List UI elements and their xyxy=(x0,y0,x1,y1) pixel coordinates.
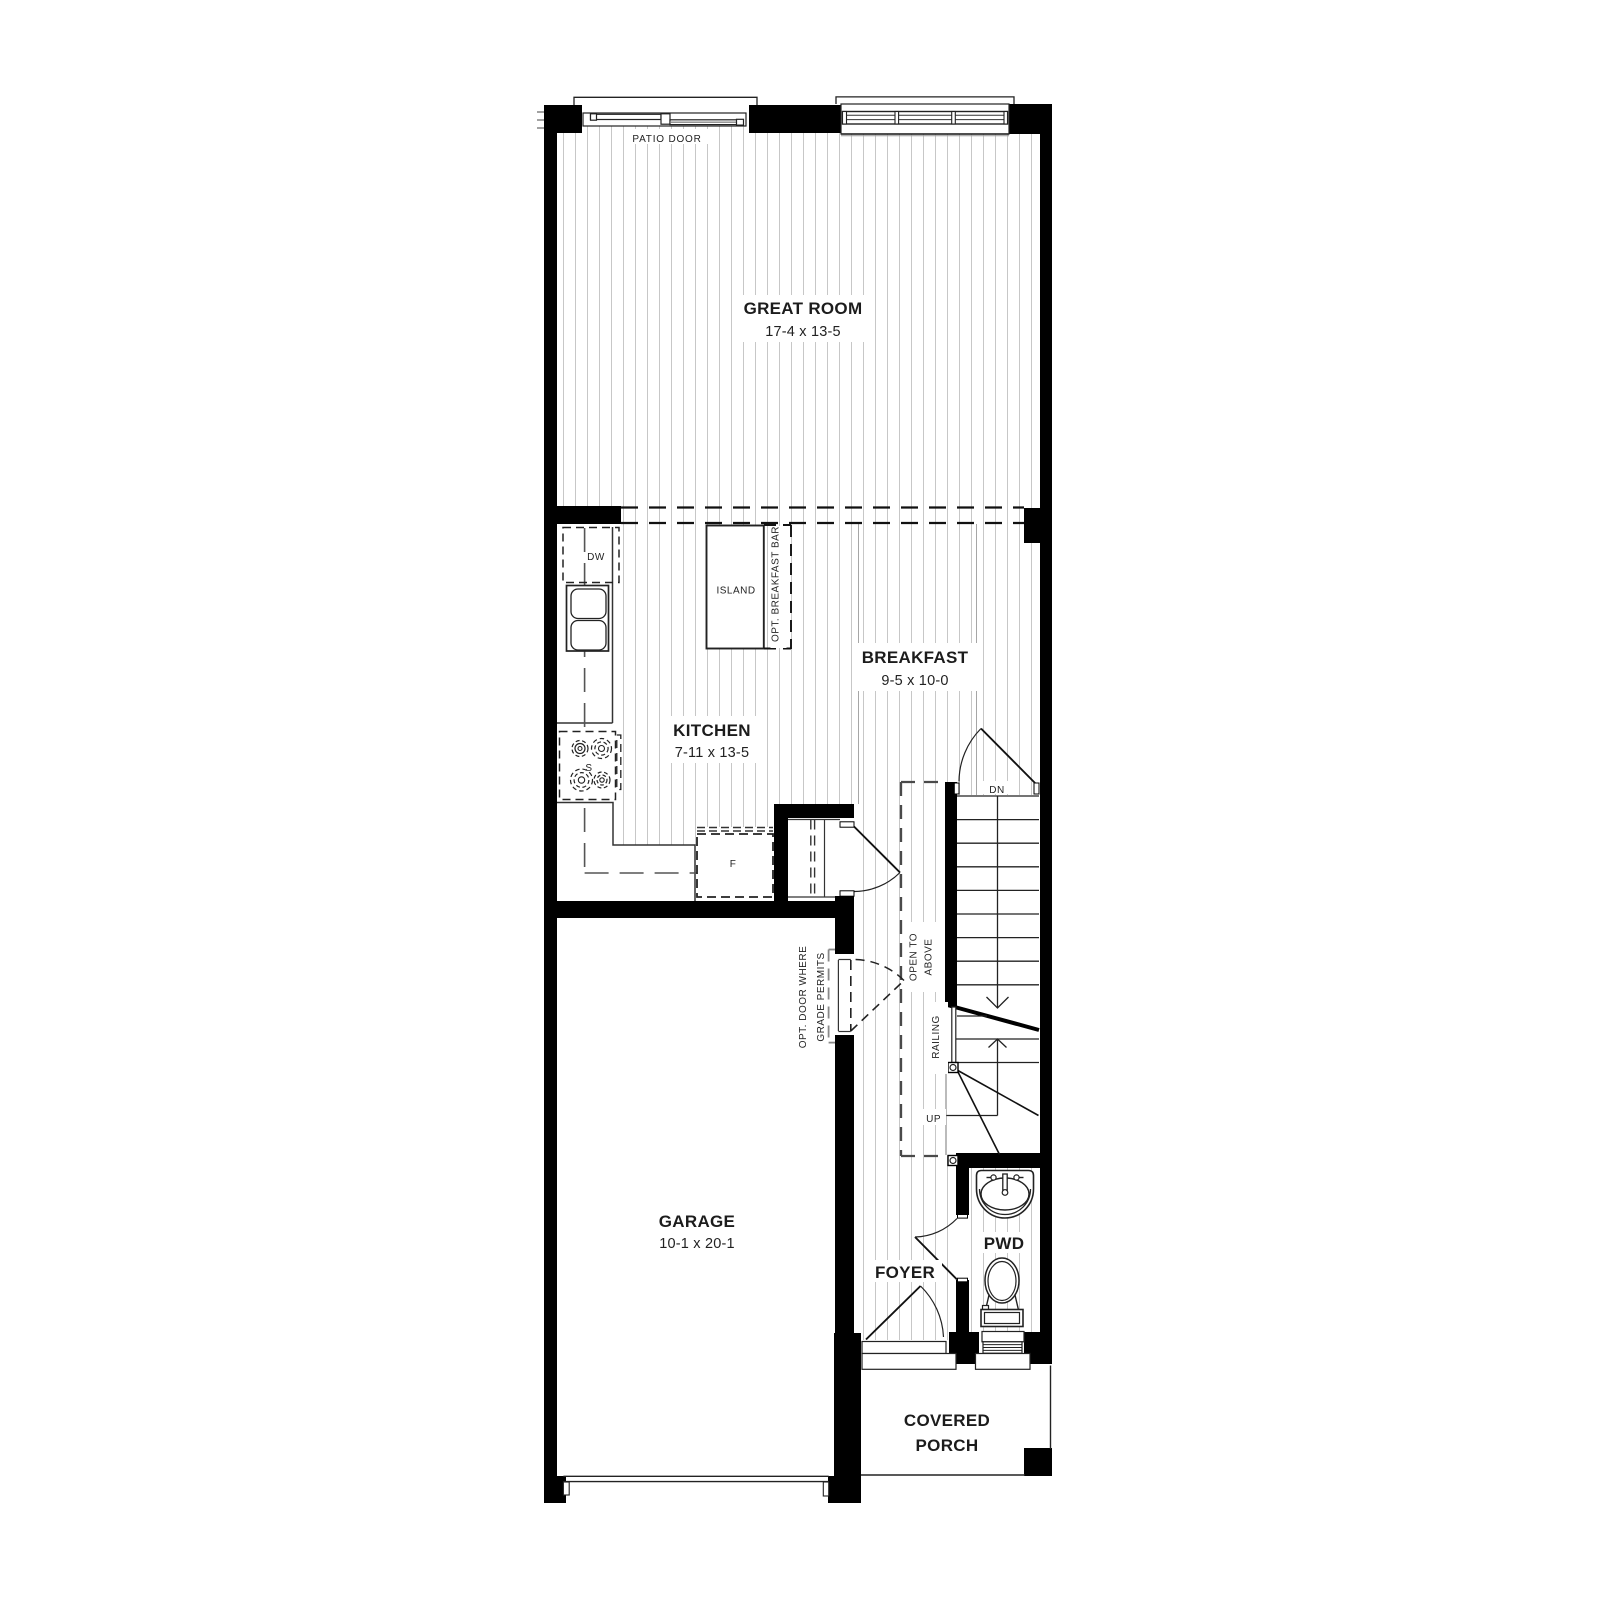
svg-text:OPEN TO: OPEN TO xyxy=(909,933,920,981)
svg-text:RAILING: RAILING xyxy=(931,1015,942,1059)
svg-text:S: S xyxy=(585,763,592,774)
svg-text:GRADE PERMITS: GRADE PERMITS xyxy=(816,952,827,1041)
svg-text:7-11 x 13-5: 7-11 x 13-5 xyxy=(675,745,749,761)
svg-text:ABOVE: ABOVE xyxy=(924,939,935,976)
svg-text:UP: UP xyxy=(926,1114,941,1125)
svg-text:DW: DW xyxy=(587,552,605,563)
svg-text:ISLAND: ISLAND xyxy=(716,586,755,597)
svg-text:OPT. DOOR WHERE: OPT. DOOR WHERE xyxy=(798,946,809,1049)
svg-text:GREAT ROOM: GREAT ROOM xyxy=(744,299,863,318)
svg-text:10-1 x 20-1: 10-1 x 20-1 xyxy=(659,1236,735,1252)
svg-text:17-4 x 13-5: 17-4 x 13-5 xyxy=(765,324,841,340)
svg-text:KITCHEN: KITCHEN xyxy=(673,721,751,740)
svg-text:PORCH: PORCH xyxy=(916,1436,979,1455)
svg-text:DN: DN xyxy=(989,785,1004,796)
svg-text:F: F xyxy=(730,859,737,870)
svg-text:OPT. BREAKFAST BAR: OPT. BREAKFAST BAR xyxy=(771,526,782,642)
svg-text:FOYER: FOYER xyxy=(875,1263,935,1282)
svg-text:BREAKFAST: BREAKFAST xyxy=(862,648,969,667)
svg-text:GARAGE: GARAGE xyxy=(659,1212,735,1231)
svg-text:9-5 x 10-0: 9-5 x 10-0 xyxy=(881,673,948,689)
svg-text:PATIO DOOR: PATIO DOOR xyxy=(632,134,701,145)
svg-text:COVERED: COVERED xyxy=(904,1411,990,1430)
svg-text:PWD: PWD xyxy=(984,1234,1025,1253)
